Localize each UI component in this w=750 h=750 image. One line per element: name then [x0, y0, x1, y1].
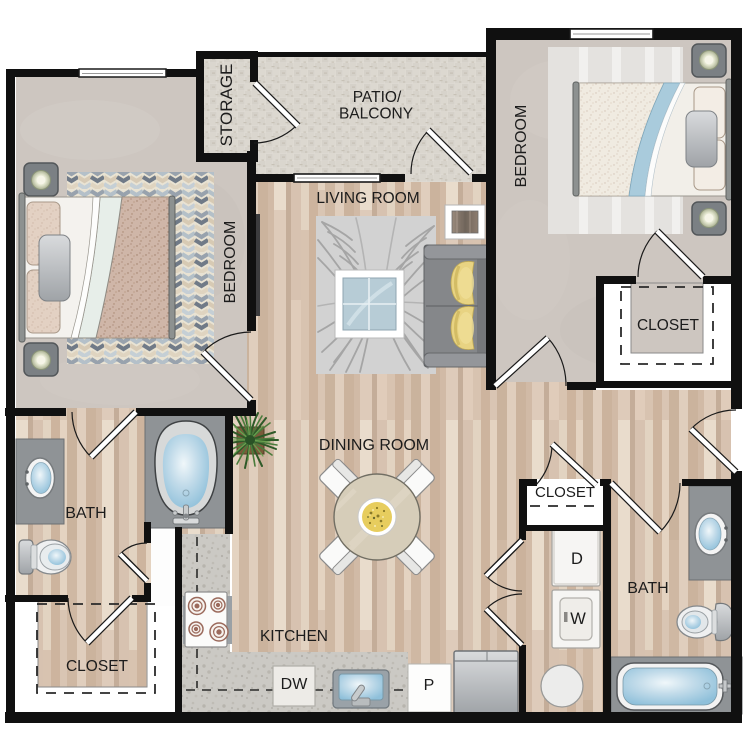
svg-text:D: D [571, 550, 583, 568]
svg-text:BEDROOM: BEDROOM [222, 221, 239, 304]
svg-text:P: P [424, 677, 435, 694]
svg-text:BATH: BATH [627, 580, 668, 597]
svg-text:KITCHEN: KITCHEN [260, 628, 328, 645]
svg-text:DW: DW [281, 676, 309, 693]
svg-text:PATIO/: PATIO/ [353, 89, 402, 106]
svg-text:CLOSET: CLOSET [66, 658, 129, 675]
svg-text:LIVING ROOM: LIVING ROOM [316, 190, 419, 207]
svg-text:CLOSET: CLOSET [535, 484, 595, 501]
svg-text:BALCONY: BALCONY [339, 106, 413, 123]
svg-text:CLOSET: CLOSET [637, 317, 700, 334]
svg-text:BEDROOM: BEDROOM [513, 105, 530, 188]
svg-text:W: W [570, 610, 586, 628]
svg-text:STORAGE: STORAGE [217, 64, 236, 147]
svg-text:DINING ROOM: DINING ROOM [319, 437, 429, 454]
svg-text:BATH: BATH [65, 505, 106, 522]
